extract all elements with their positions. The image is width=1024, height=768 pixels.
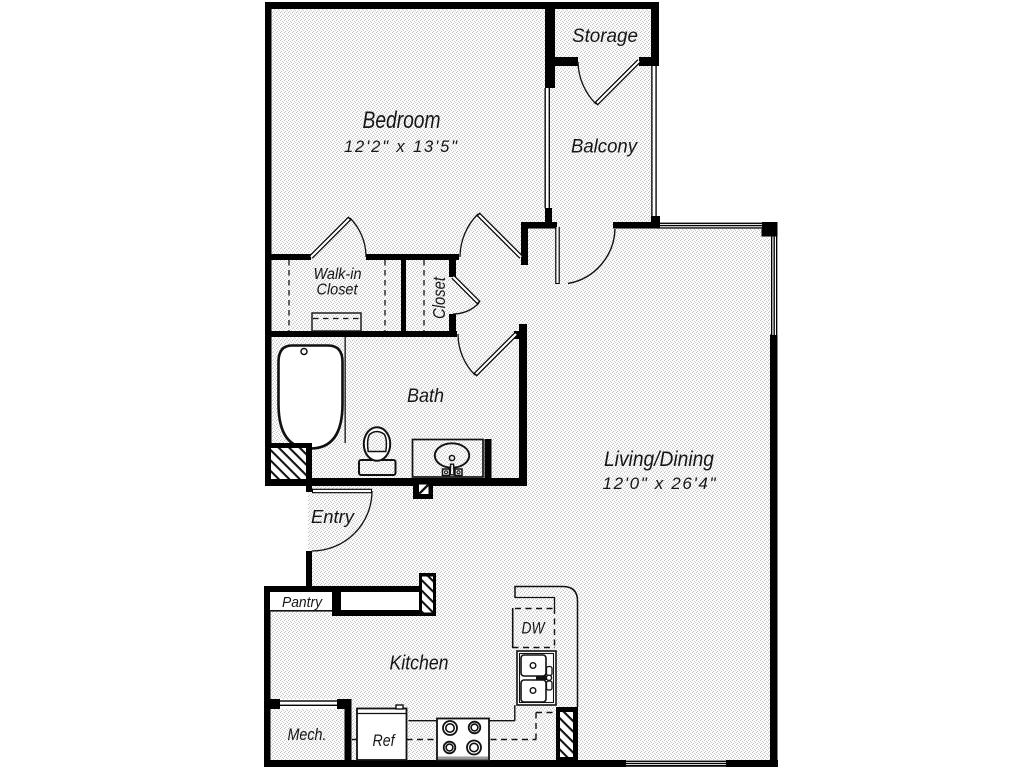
svg-text:Ref: Ref — [373, 731, 397, 750]
svg-text:12'2" x 13'5": 12'2" x 13'5" — [344, 138, 458, 156]
svg-text:Pantry: Pantry — [282, 595, 323, 611]
svg-text:Bath: Bath — [407, 385, 444, 407]
svg-text:12'0" x 26'4": 12'0" x 26'4" — [603, 474, 717, 493]
svg-text:DW: DW — [522, 619, 547, 638]
svg-text:Closet: Closet — [429, 276, 449, 319]
svg-text:Living/Dining: Living/Dining — [604, 448, 714, 471]
svg-text:Entry: Entry — [311, 507, 355, 527]
svg-text:Closet: Closet — [317, 282, 359, 299]
svg-text:Mech.: Mech. — [288, 726, 327, 744]
svg-text:Balcony: Balcony — [571, 137, 638, 158]
svg-text:Kitchen: Kitchen — [390, 652, 449, 675]
svg-text:Storage: Storage — [572, 26, 638, 47]
svg-text:Bedroom: Bedroom — [363, 107, 441, 134]
svg-text:Walk-in: Walk-in — [314, 266, 362, 283]
